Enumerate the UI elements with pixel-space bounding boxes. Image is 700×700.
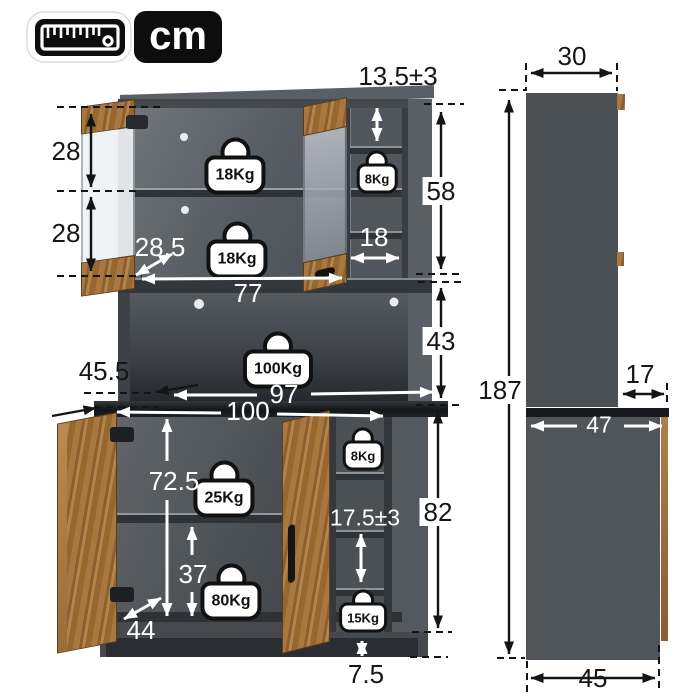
dim-upper-section-a: 28 [52, 138, 81, 164]
door-knob-icon [315, 267, 335, 279]
dim-top-cubby-height: 13.5±3 [358, 63, 437, 89]
dim-hutch-height: 58 [423, 177, 460, 205]
dim-side-total-height: 187 [474, 376, 525, 404]
side-door-rail-bottom [617, 252, 624, 266]
door-glass-pane [81, 127, 135, 263]
unit-label: cm [149, 16, 207, 56]
dim-side-upper-depth: 30 [558, 43, 587, 69]
side-door-rail-top [617, 94, 625, 110]
dim-base-interior-depth: 44 [127, 617, 156, 643]
dim-side-cubby-height: 17.5±3 [330, 507, 400, 530]
dim-side-counter-overhang: 17 [626, 361, 655, 387]
weight-value: 25Kg [193, 479, 254, 518]
dim-counter-back-width: 97 [270, 381, 299, 407]
hinge-icon [126, 115, 148, 129]
weight-badge: 18Kg [206, 222, 267, 279]
product-dimension-diagram: cm [0, 0, 700, 700]
weight-value: 18Kg [206, 240, 267, 279]
hinge-icon [110, 587, 134, 602]
side-door-edge [661, 417, 668, 641]
dim-hutch-interior-width: 77 [234, 280, 263, 306]
dim-overall-width: 100 [226, 398, 269, 424]
cm-unit-badge: cm [134, 11, 222, 63]
dim-hutch-shelf-depth: 28.5 [135, 234, 186, 260]
weight-value: 80Kg [200, 582, 261, 621]
door-edge [58, 423, 67, 653]
side-base-section [526, 417, 660, 660]
base-cubby-shelf-1 [336, 472, 384, 480]
dim-side-counter-depth: 47 [586, 414, 612, 437]
dim-base-shelf-height: 37 [179, 561, 208, 587]
door-handle-icon [288, 524, 295, 584]
dim-side-base-depth: 45 [579, 665, 608, 691]
weight-badge: 8Kg [357, 151, 398, 194]
hutch-right-panel [408, 99, 432, 403]
weight-badge: 18Kg [204, 138, 265, 195]
ruler-icon [26, 11, 132, 63]
dim-toe-kick-height: 7.5 [348, 661, 384, 687]
base-wood-door-left [57, 412, 117, 654]
weight-value: 15Kg [339, 603, 387, 633]
dim-cubby-width: 18 [360, 224, 389, 250]
hinge-icon [110, 427, 134, 442]
dim-open-section-height: 43 [423, 327, 460, 355]
weight-badge: 25Kg [193, 461, 254, 518]
door-glass-pane [303, 127, 347, 262]
weight-value: 8Kg [343, 441, 384, 471]
dim-upper-section-b: 28 [52, 220, 81, 246]
weight-value: 18Kg [204, 156, 265, 195]
dim-base-interior-height: 72.5 [149, 468, 200, 494]
weight-badge: 15Kg [339, 590, 387, 633]
side-upper-section [526, 93, 618, 407]
hutch-glass-door-right [303, 97, 347, 292]
base-cubby-shelf-2 [336, 530, 384, 538]
weight-badge: 80Kg [200, 564, 261, 621]
base-wood-door-right [282, 410, 330, 654]
hutch-bottom-panel [118, 278, 432, 293]
dim-countertop-depth: 45.5 [79, 358, 130, 384]
hutch-column-right-wall [402, 108, 408, 278]
dim-base-height: 82 [420, 498, 457, 526]
weight-badge: 8Kg [343, 428, 384, 471]
weight-value: 8Kg [357, 164, 398, 194]
